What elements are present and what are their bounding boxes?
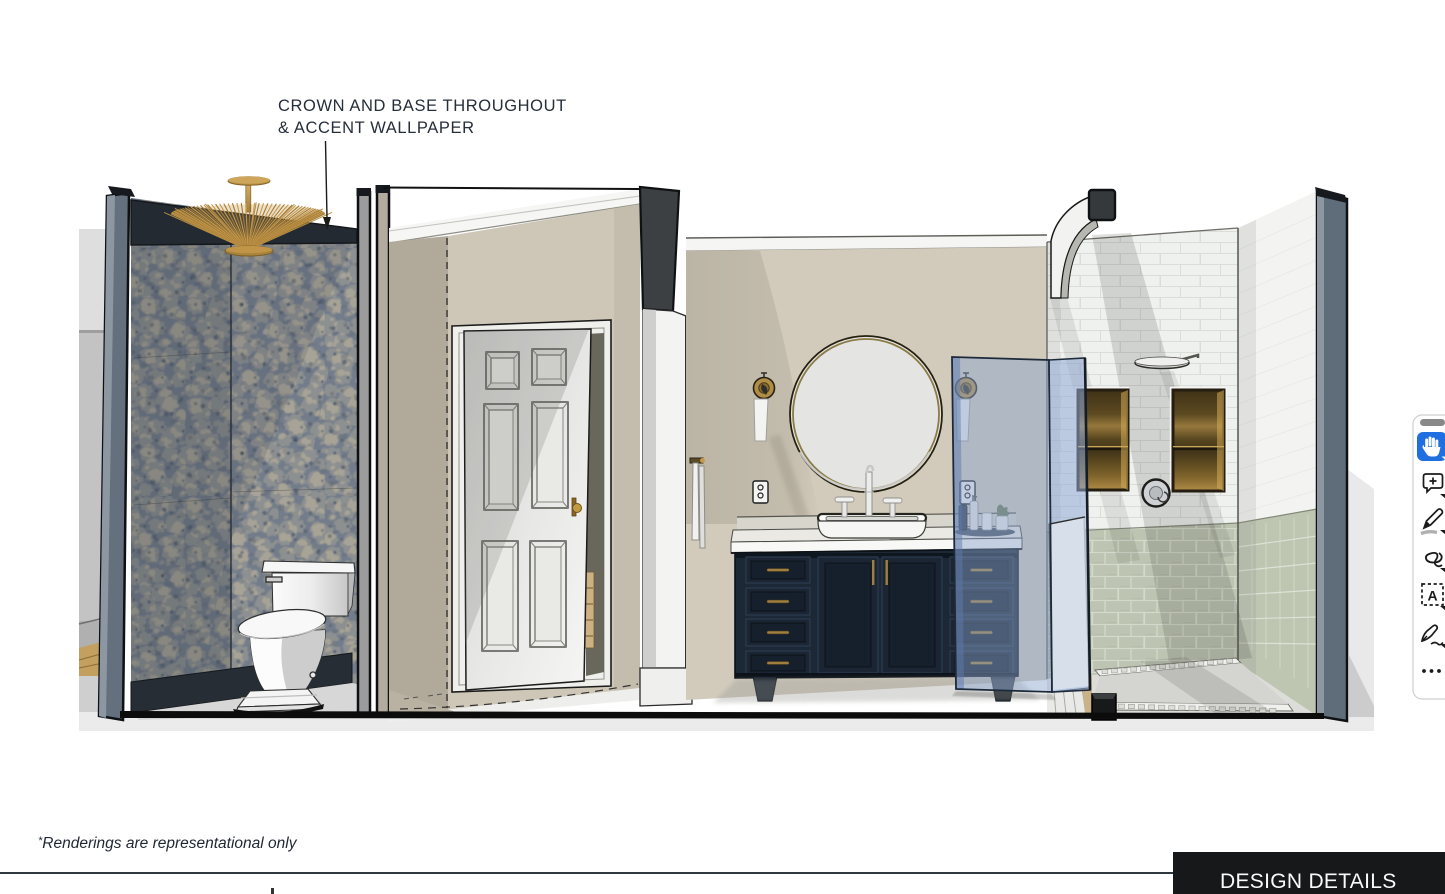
svg-text:DESIGN DETAILS: DESIGN DETAILS <box>1220 870 1397 893</box>
svg-text:A: A <box>1428 588 1438 604</box>
svg-text:& ACCENT WALLPAPER: & ACCENT WALLPAPER <box>278 119 475 137</box>
svg-text:*Renderings are representation: *Renderings are representational only <box>38 835 298 852</box>
svg-text:CROWN AND BASE THROUGHOUT: CROWN AND BASE THROUGHOUT <box>278 97 567 115</box>
